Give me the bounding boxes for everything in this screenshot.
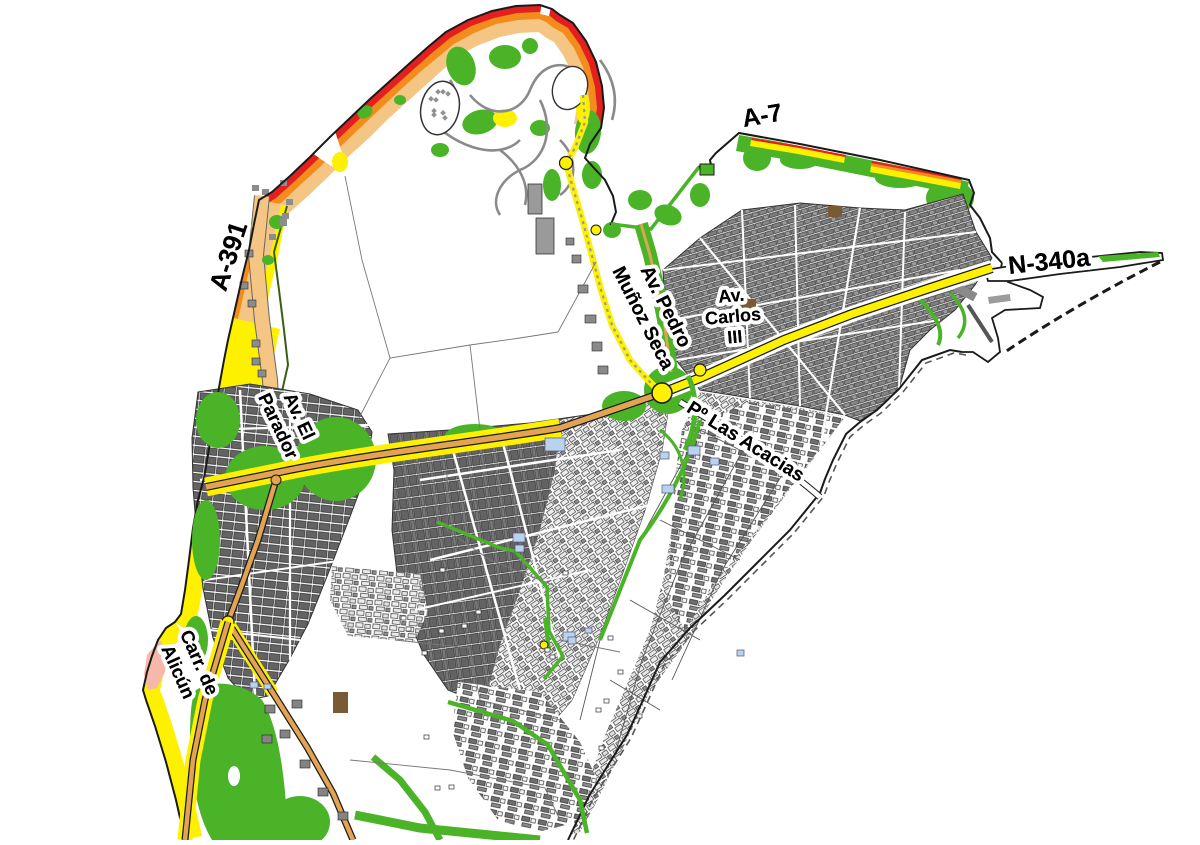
svg-text:III: III [726,326,743,347]
svg-text:Av.: Av. [717,285,745,307]
